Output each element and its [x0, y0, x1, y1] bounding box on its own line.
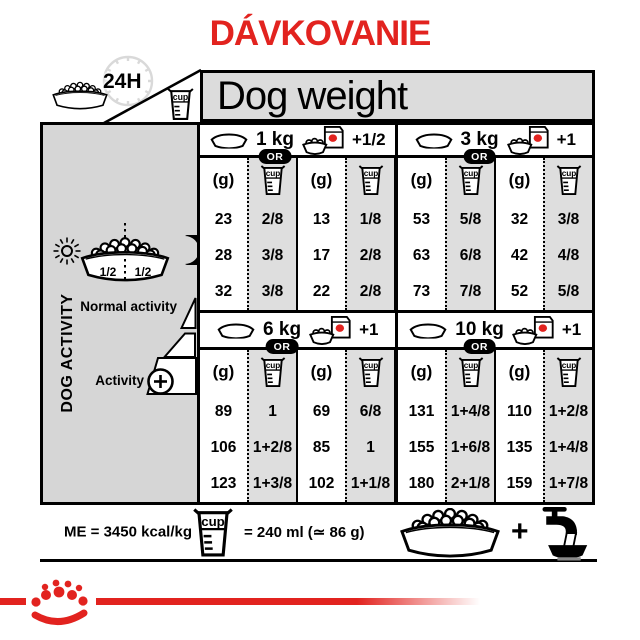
dose-value-cup: 1+2/8 [545, 394, 592, 430]
dose-value-cup: 3/8 [249, 238, 296, 274]
dose-value-cup: 3/8 [545, 202, 592, 238]
wet-food-pouch-icon [308, 315, 352, 345]
dose-value-cup: 2/8 [347, 238, 394, 274]
dose-value-g: 135 [496, 430, 543, 466]
red-divider-right [96, 598, 480, 605]
grams-label: (g) [311, 362, 333, 382]
day-night-bowl-icon: 1/2 1/2 [77, 223, 173, 289]
or-badge: OR [463, 149, 496, 164]
dose-value-cup: 1+1/8 [347, 466, 394, 502]
dose-value-g: 23 [200, 202, 247, 238]
activity-label: Activity [43, 373, 144, 388]
dose-pair: (g) 32 42 52 3/8 4/8 5/8 [494, 158, 592, 310]
pouch-amount: +1 [359, 320, 378, 340]
dry-food-bowl-icon [216, 322, 256, 339]
dose-value-g: 73 [398, 274, 445, 310]
dosage-table: 1 kg OR +1/2 3 kg OR +1 (g) 23 28 32 [200, 122, 595, 505]
cup-column: 1+4/8 1+6/8 2+1/8 [445, 350, 494, 502]
cup-column: 1 1+2/8 1+3/8 [247, 350, 296, 502]
dose-value-cup: 1 [249, 394, 296, 430]
dose-rows-1: (g) 23 28 32 2/8 3/8 3/8 (g) 13 17 22 [200, 158, 592, 310]
measuring-cup-icon [167, 88, 194, 121]
dose-value-cup: 1+3/8 [249, 466, 296, 502]
dose-value-g: 13 [298, 202, 345, 238]
dose-value-cup: 1+4/8 [447, 394, 494, 430]
measuring-cup-icon [192, 508, 234, 558]
dose-value-cup: 2/8 [347, 274, 394, 310]
activity-ramp-small-icon [180, 295, 197, 330]
measuring-cup-icon [556, 357, 582, 388]
dose-pair: (g) 131 155 180 1+4/8 1+6/8 2+1/8 [394, 350, 494, 502]
dog-weight-title: Dog weight [203, 76, 407, 116]
plus-sign: + [511, 515, 529, 549]
cup-column: 1/8 2/8 2/8 [345, 158, 394, 310]
cup-column: 2/8 3/8 3/8 [247, 158, 296, 310]
dose-pair: (g) 53 63 73 5/8 6/8 7/8 [394, 158, 494, 310]
dose-pair: (g) 110 135 159 1+2/8 1+4/8 1+7/8 [494, 350, 592, 502]
measuring-cup-icon [260, 165, 286, 196]
weight-header-3kg: 3 kg OR +1 [398, 125, 593, 155]
weight-header-1kg: 1 kg OR +1/2 [200, 125, 398, 155]
grams-column: (g) 69 85 102 [298, 350, 345, 502]
cup-equivalent-label: = 240 ml (≃ 86 g) [244, 523, 365, 541]
dose-value-g: 180 [398, 466, 445, 502]
or-badge: OR [259, 149, 292, 164]
half-left-label: 1/2 [100, 265, 117, 279]
dose-value-cup: 5/8 [545, 274, 592, 310]
weight-label: 10 kg [455, 319, 504, 341]
measuring-cup-icon [358, 165, 384, 196]
or-badge: OR [266, 339, 299, 354]
dose-value-g: 155 [398, 430, 445, 466]
dose-value-g: 17 [298, 238, 345, 274]
dose-value-g: 53 [398, 202, 445, 238]
dose-value-g: 22 [298, 274, 345, 310]
moon-icon [177, 235, 199, 265]
dose-value-g: 159 [496, 466, 543, 502]
weight-label: 6 kg [263, 319, 301, 341]
dose-value-cup: 1+6/8 [447, 430, 494, 466]
weight-label: 1 kg [256, 129, 294, 151]
dose-value-g: 131 [398, 394, 445, 430]
grams-label: (g) [213, 170, 235, 190]
grams-label: (g) [509, 170, 531, 190]
wet-food-pouch-icon [511, 315, 555, 345]
wet-food-pouch-icon [301, 125, 345, 155]
dose-value-g: 85 [298, 430, 345, 466]
grams-label: (g) [411, 362, 433, 382]
pouch-amount: +1/2 [352, 130, 386, 150]
dose-value-cup: 5/8 [447, 202, 494, 238]
grams-column: (g) 89 106 123 [200, 350, 247, 502]
dose-value-g: 42 [496, 238, 543, 274]
activity-ramp-medium-icon [163, 332, 197, 359]
dose-pair: (g) 89 106 123 1 1+2/8 1+3/8 [200, 350, 296, 502]
crown-logo [28, 578, 96, 634]
normal-activity-label: Normal activity [71, 299, 177, 314]
page-title: DÁVKOVANIE [0, 14, 640, 54]
kibble-bowl-icon [396, 508, 504, 559]
measuring-cup-icon [260, 357, 286, 388]
dose-value-g: 106 [200, 430, 247, 466]
dose-pair: (g) 23 28 32 2/8 3/8 3/8 [200, 158, 296, 310]
dose-value-g: 110 [496, 394, 543, 430]
dry-food-bowl-icon [408, 322, 448, 339]
grams-column: (g) 32 42 52 [496, 158, 543, 310]
dose-value-cup: 6/8 [447, 238, 494, 274]
dose-value-cup: 2+1/8 [447, 466, 494, 502]
dose-value-cup: 1+4/8 [545, 430, 592, 466]
cup-column: 5/8 6/8 7/8 [445, 158, 494, 310]
grams-label: (g) [311, 170, 333, 190]
dose-value-cup: 1+2/8 [249, 430, 296, 466]
tap-water-icon [534, 507, 592, 561]
weight-label: 3 kg [461, 129, 499, 151]
grams-column: (g) 110 135 159 [496, 350, 543, 502]
dose-value-g: 52 [496, 274, 543, 310]
dose-value-g: 32 [496, 202, 543, 238]
weight-header-row-2: 6 kg OR +1 10 kg OR +1 [200, 310, 592, 350]
cup-column: 3/8 4/8 5/8 [543, 158, 592, 310]
dose-value-g: 32 [200, 274, 247, 310]
grams-column: (g) 23 28 32 [200, 158, 247, 310]
weight-header-row-1: 1 kg OR +1/2 3 kg OR +1 [200, 125, 592, 158]
cup-column: 6/8 1 1+1/8 [345, 350, 394, 502]
pouch-amount: +1 [557, 130, 576, 150]
half-right-label: 1/2 [135, 265, 152, 279]
dose-value-cup: 7/8 [447, 274, 494, 310]
dose-value-g: 102 [298, 466, 345, 502]
dose-value-g: 28 [200, 238, 247, 274]
footer-info-row: ME = 3450 kcal/kg = 240 ml (≃ 86 g) + [40, 505, 597, 562]
dose-value-cup: 3/8 [249, 274, 296, 310]
dose-value-g: 69 [298, 394, 345, 430]
dose-rows-2: (g) 89 106 123 1 1+2/8 1+3/8 (g) 69 85 [200, 350, 592, 502]
dose-value-g: 123 [200, 466, 247, 502]
weight-header-6kg: 6 kg OR +1 [200, 313, 398, 347]
dose-value-cup: 4/8 [545, 238, 592, 274]
grams-label: (g) [509, 362, 531, 382]
measuring-cup-icon [556, 165, 582, 196]
dose-pair: (g) 69 85 102 6/8 1 1+1/8 [296, 350, 394, 502]
measuring-cup-icon [458, 357, 484, 388]
plus-circle-icon [145, 366, 176, 397]
dose-value-cup: 2/8 [249, 202, 296, 238]
wet-food-pouch-icon [506, 125, 550, 155]
feeding-guide: cup [0, 0, 640, 640]
dry-food-bowl-icon [414, 132, 454, 149]
grams-column: (g) 131 155 180 [398, 350, 445, 502]
dose-value-g: 63 [398, 238, 445, 274]
dose-value-g: 89 [200, 394, 247, 430]
dog-weight-header: Dog weight [200, 70, 595, 122]
dose-pair: (g) 13 17 22 1/8 2/8 2/8 [296, 158, 394, 310]
energy-label: ME = 3450 kcal/kg [64, 524, 192, 541]
pouch-amount: +1 [562, 320, 581, 340]
grams-column: (g) 53 63 73 [398, 158, 445, 310]
dose-value-cup: 1/8 [347, 202, 394, 238]
or-badge: OR [463, 339, 496, 354]
dose-value-cup: 1 [347, 430, 394, 466]
measuring-cup-icon [458, 165, 484, 196]
cup-column: 1+2/8 1+4/8 1+7/8 [543, 350, 592, 502]
dry-food-bowl-icon [209, 132, 249, 149]
kibble-bowl-icon [53, 82, 106, 108]
grams-label: (g) [213, 362, 235, 382]
grams-column: (g) 13 17 22 [298, 158, 345, 310]
measuring-cup-icon [358, 357, 384, 388]
dose-value-cup: 1+7/8 [545, 466, 592, 502]
weight-header-10kg: 10 kg OR +1 [398, 313, 593, 347]
grams-label: (g) [411, 170, 433, 190]
dose-value-cup: 6/8 [347, 394, 394, 430]
red-divider-left [0, 598, 26, 605]
dog-activity-sidebar: 1/2 1/2 DOG ACTIVITY Normal activity Act… [40, 122, 200, 505]
